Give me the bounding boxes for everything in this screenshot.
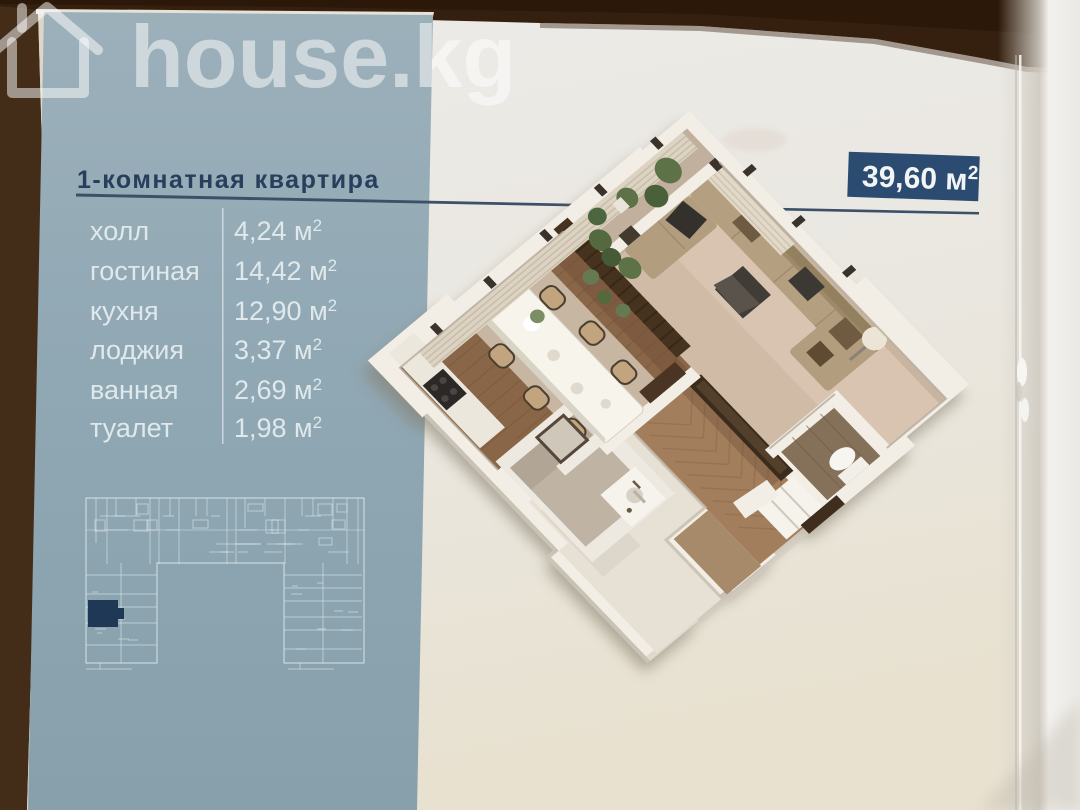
- svg-text:холл: холл: [90, 216, 149, 246]
- svg-text:лоджия: лоджия: [90, 335, 184, 365]
- svg-text:4,24 м2: 4,24 м2: [234, 216, 322, 246]
- svg-text:туалет: туалет: [90, 413, 173, 443]
- svg-text:house.kg: house.kg: [130, 7, 516, 106]
- svg-text:12,90 м2: 12,90 м2: [234, 296, 337, 326]
- svg-text:3,37 м2: 3,37 м2: [234, 335, 322, 365]
- svg-text:1,98 м2: 1,98 м2: [234, 413, 322, 443]
- svg-text:39,60 м2: 39,60 м2: [861, 159, 978, 197]
- svg-text:1-комнатная квартира: 1-комнатная квартира: [77, 166, 380, 194]
- svg-text:гостиная: гостиная: [90, 256, 200, 286]
- svg-text:14,42 м2: 14,42 м2: [234, 256, 337, 286]
- svg-text:ванная: ванная: [90, 375, 179, 405]
- svg-text:2,69 м2: 2,69 м2: [234, 375, 322, 405]
- svg-text:кухня: кухня: [90, 296, 159, 326]
